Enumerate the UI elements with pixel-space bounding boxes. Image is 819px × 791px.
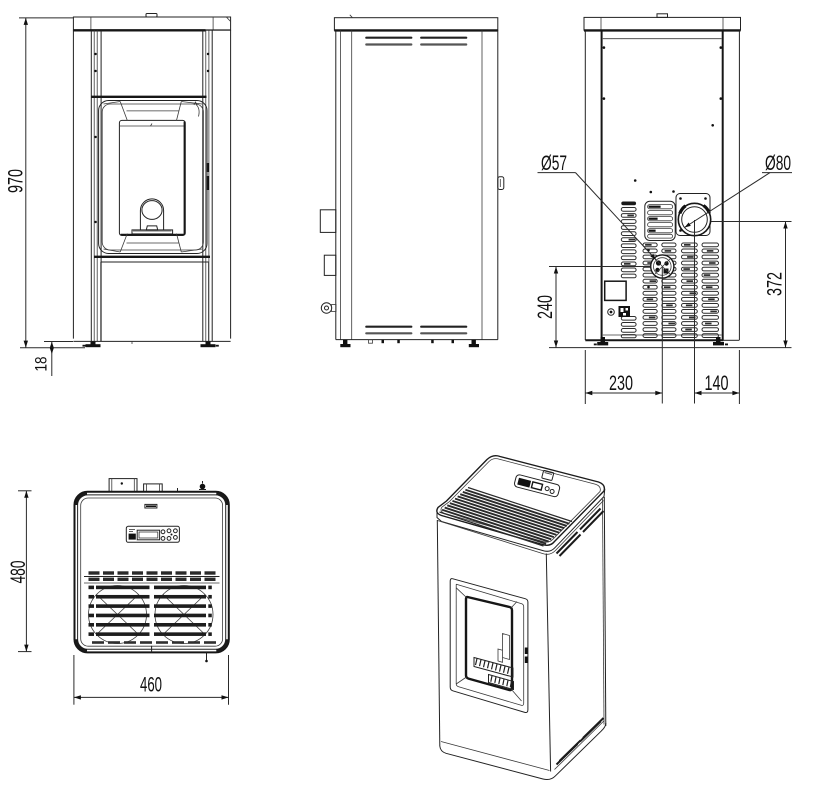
svg-text:140: 140 (705, 372, 729, 395)
svg-text:240: 240 (534, 295, 557, 319)
svg-text:Ø57: Ø57 (541, 152, 567, 175)
svg-text:230: 230 (609, 372, 633, 395)
svg-text:Ø80: Ø80 (765, 152, 791, 175)
svg-text:18: 18 (32, 357, 51, 372)
svg-text:460: 460 (140, 674, 162, 697)
svg-text:480: 480 (7, 561, 30, 584)
svg-text:970: 970 (5, 169, 28, 193)
svg-text:372: 372 (764, 272, 787, 296)
